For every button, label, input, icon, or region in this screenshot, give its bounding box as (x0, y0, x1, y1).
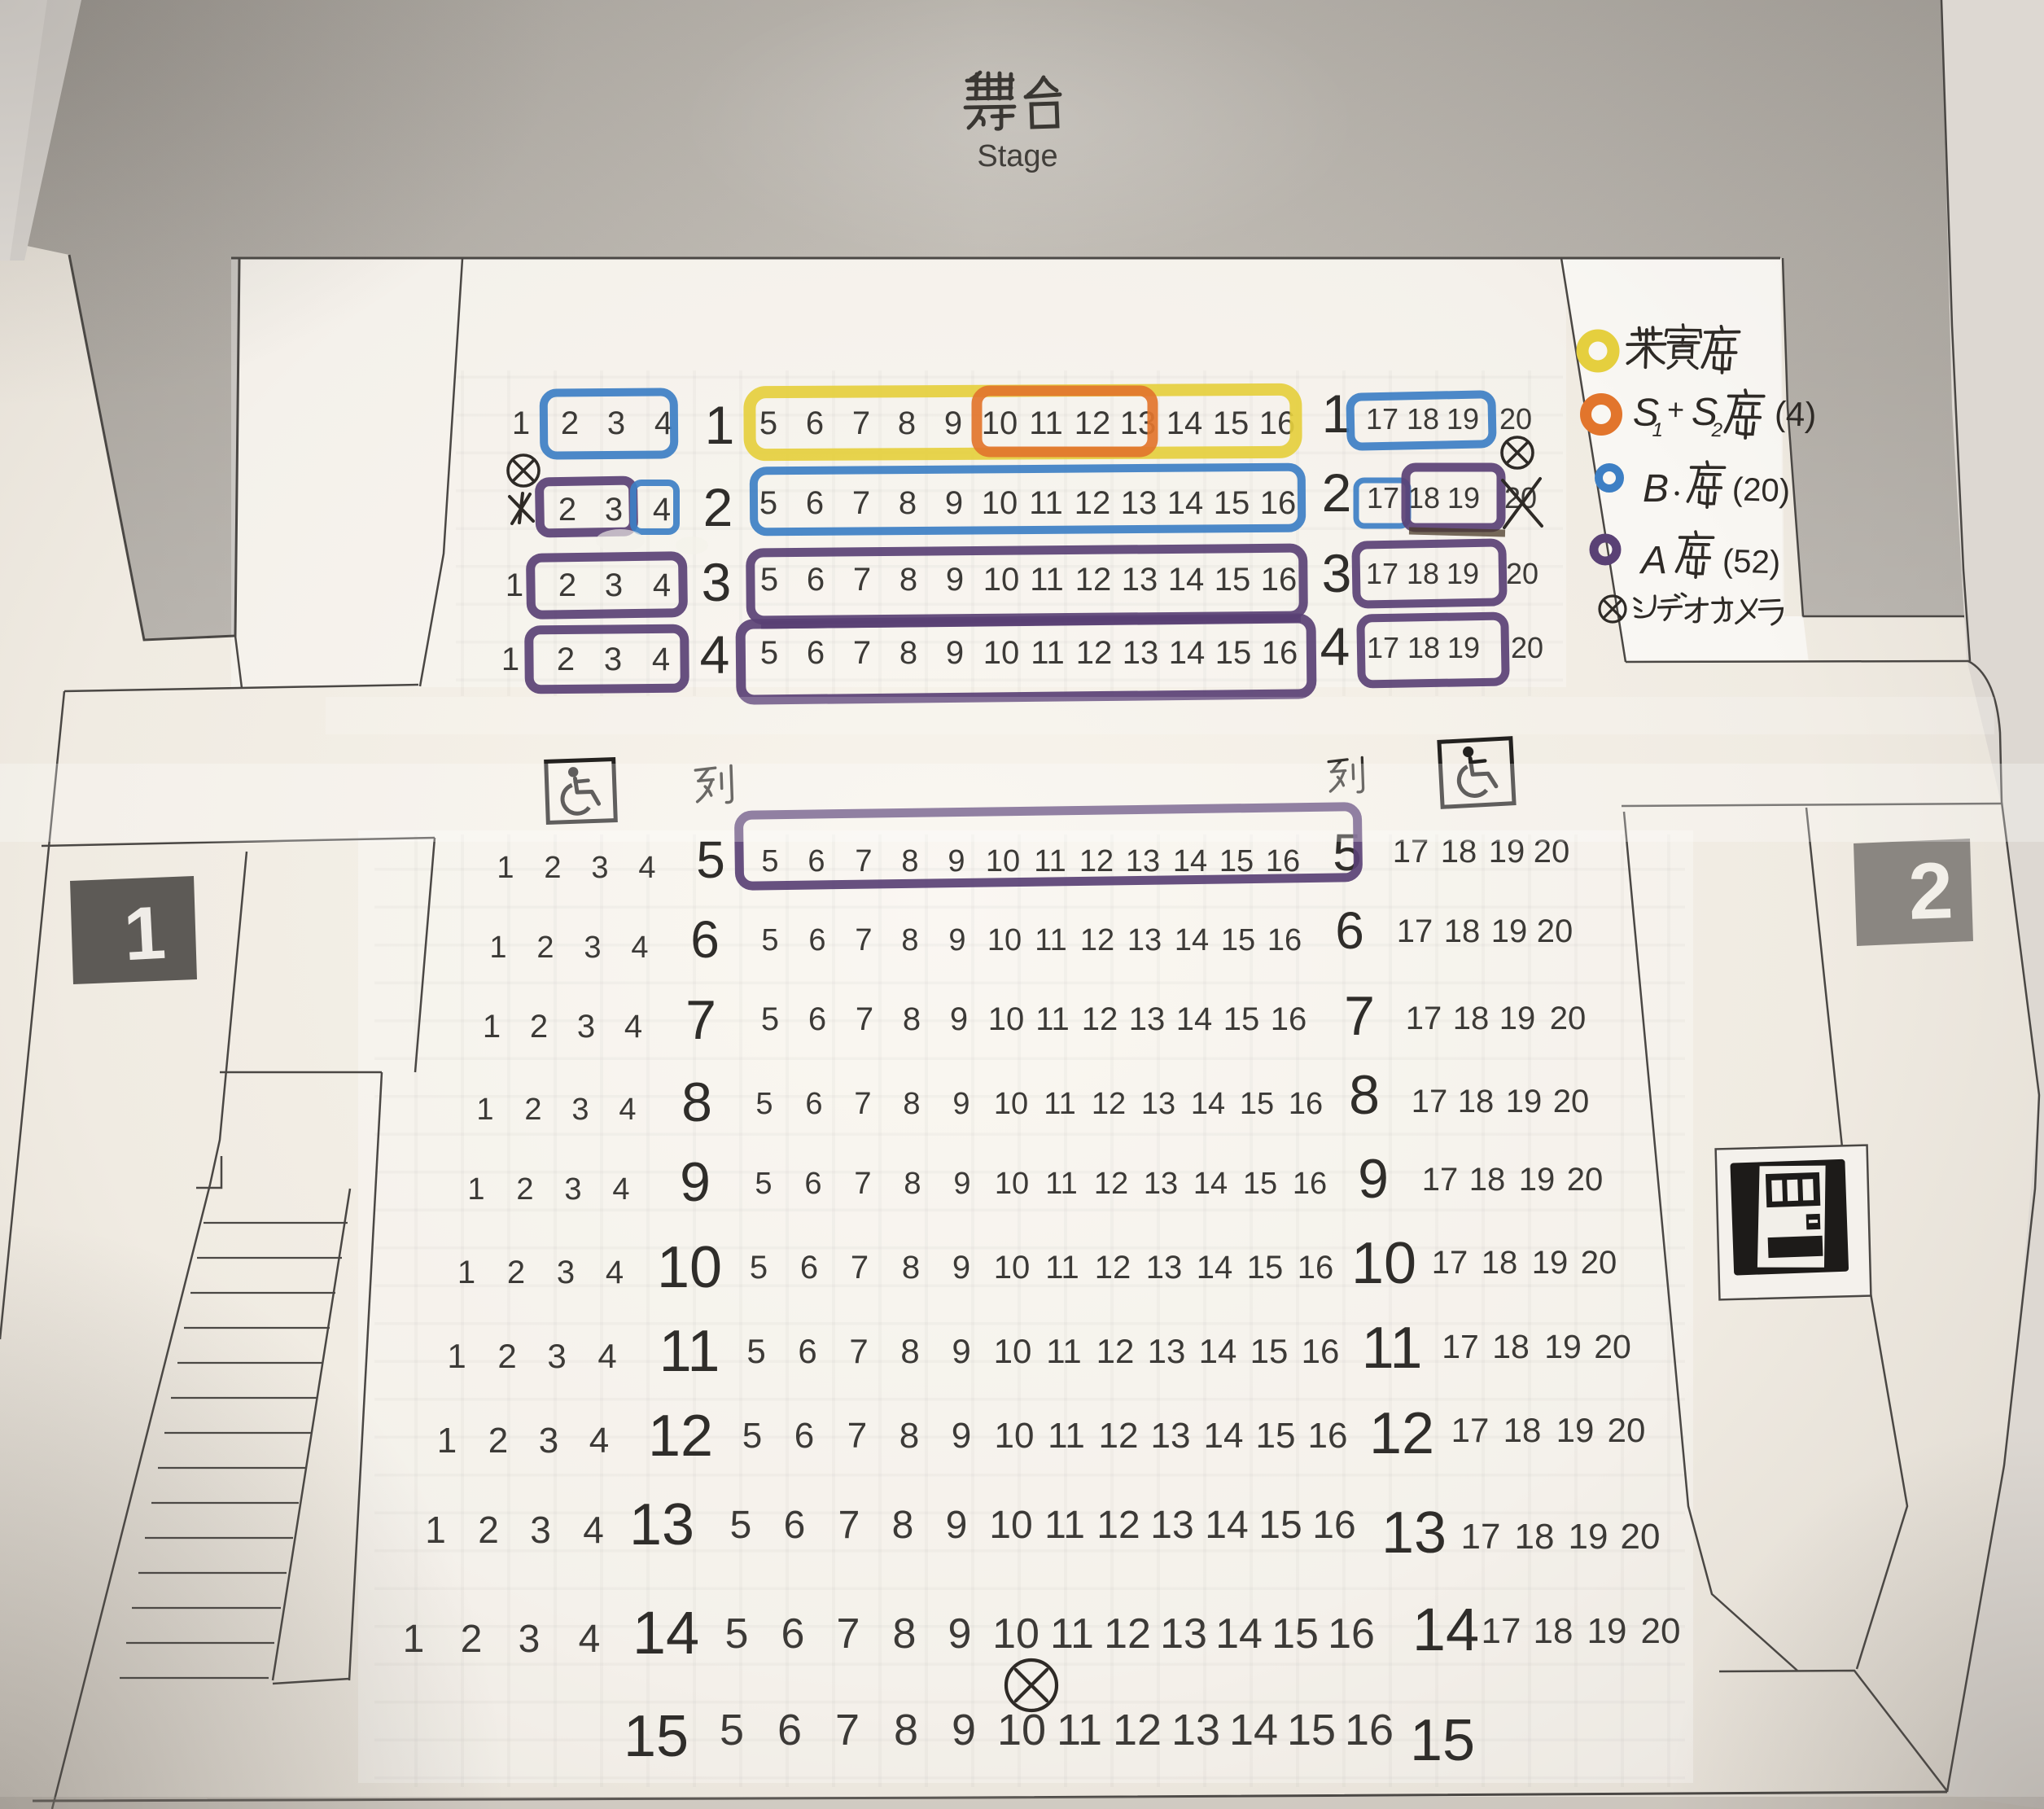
svg-text:7: 7 (1344, 985, 1375, 1047)
svg-text:19: 19 (1447, 402, 1479, 436)
svg-text:7: 7 (856, 1001, 873, 1037)
svg-text:11: 11 (1050, 1610, 1094, 1658)
svg-text:16: 16 (1261, 562, 1298, 598)
svg-text:11: 11 (1029, 485, 1063, 521)
svg-text:3: 3 (607, 405, 625, 441)
svg-text:13: 13 (1150, 1504, 1193, 1547)
svg-text:10: 10 (982, 405, 1018, 441)
svg-text:4: 4 (638, 851, 655, 885)
svg-text:3: 3 (557, 1255, 575, 1290)
svg-text:9: 9 (946, 635, 964, 671)
svg-text:B: B (1643, 467, 1669, 510)
svg-text:19: 19 (1491, 913, 1528, 949)
svg-text:11: 11 (1044, 1087, 1075, 1121)
svg-text:2: 2 (1907, 845, 1954, 936)
svg-text:7: 7 (852, 485, 870, 521)
svg-text:7: 7 (854, 1087, 871, 1121)
svg-text:10: 10 (657, 1235, 722, 1300)
svg-text:8: 8 (899, 485, 917, 521)
svg-text:20: 20 (1621, 1517, 1661, 1557)
svg-text:9: 9 (948, 844, 965, 878)
svg-text:2: 2 (524, 1093, 541, 1127)
svg-text:5: 5 (750, 1250, 768, 1286)
svg-text:11: 11 (1030, 562, 1064, 598)
svg-text:6: 6 (784, 1504, 806, 1547)
svg-text:11: 11 (1057, 1706, 1102, 1754)
svg-text:11: 11 (1046, 1332, 1082, 1370)
svg-text:10: 10 (983, 635, 1020, 671)
svg-text:12: 12 (1079, 844, 1114, 878)
svg-text:9: 9 (953, 1167, 970, 1201)
svg-text:17: 17 (1432, 1245, 1468, 1281)
svg-text:4: 4 (624, 1009, 642, 1045)
svg-text:7: 7 (685, 989, 716, 1051)
svg-text:9: 9 (946, 562, 964, 598)
svg-text:2: 2 (507, 1255, 525, 1290)
svg-text:5: 5 (742, 1416, 762, 1456)
svg-text:12: 12 (1080, 923, 1114, 957)
svg-text:8: 8 (893, 1610, 917, 1658)
svg-text:3: 3 (702, 552, 732, 612)
svg-text:5: 5 (761, 1001, 779, 1037)
svg-text:10: 10 (995, 1416, 1035, 1456)
svg-text:9: 9 (944, 405, 962, 441)
svg-text:11: 11 (1029, 405, 1063, 441)
svg-text:3: 3 (1322, 543, 1352, 603)
svg-text:19: 19 (1519, 1162, 1556, 1198)
svg-text:3: 3 (564, 1172, 581, 1207)
svg-text:16: 16 (1298, 1250, 1334, 1286)
svg-text:7: 7 (855, 844, 872, 878)
svg-text:15: 15 (1250, 1332, 1289, 1370)
svg-text:7: 7 (837, 1610, 860, 1658)
svg-text:12: 12 (1369, 1401, 1434, 1466)
svg-text:10: 10 (1351, 1231, 1416, 1296)
svg-text:20: 20 (1550, 1001, 1587, 1036)
svg-text:16: 16 (1266, 844, 1300, 878)
svg-text:13: 13 (1129, 1001, 1166, 1037)
svg-text:14: 14 (1175, 923, 1209, 957)
svg-text:12: 12 (1082, 1001, 1118, 1037)
svg-text:2: 2 (544, 851, 561, 885)
svg-text:15: 15 (1215, 635, 1252, 671)
svg-text:4: 4 (579, 1618, 601, 1661)
svg-text:3: 3 (584, 931, 601, 965)
svg-text:11: 11 (1034, 844, 1066, 878)
svg-text:3: 3 (591, 851, 608, 885)
svg-text:5: 5 (761, 923, 778, 957)
svg-text:14: 14 (1167, 485, 1204, 521)
svg-text:4: 4 (652, 642, 670, 677)
svg-text:5: 5 (760, 562, 778, 598)
svg-text:1: 1 (122, 891, 168, 977)
svg-text:9: 9 (952, 1087, 969, 1121)
svg-text:11: 11 (659, 1319, 720, 1384)
svg-text:9: 9 (952, 1332, 970, 1370)
svg-text:4: 4 (619, 1093, 636, 1127)
svg-text:13: 13 (1126, 844, 1160, 878)
svg-text:18: 18 (1458, 1084, 1495, 1119)
svg-text:4: 4 (583, 1509, 604, 1551)
svg-text:14: 14 (1173, 844, 1207, 878)
svg-text:9: 9 (680, 1151, 711, 1213)
svg-text:10: 10 (986, 844, 1020, 878)
svg-text:17: 17 (1422, 1162, 1459, 1198)
svg-text:10: 10 (992, 1610, 1040, 1658)
svg-text:18: 18 (1492, 1328, 1530, 1365)
svg-text:6: 6 (781, 1610, 805, 1658)
svg-text:12: 12 (1092, 1087, 1126, 1121)
svg-text:3: 3 (577, 1009, 595, 1045)
svg-text:5: 5 (759, 485, 777, 521)
svg-text:10: 10 (994, 1250, 1031, 1286)
svg-text:20: 20 (1537, 913, 1573, 949)
svg-text:14: 14 (1204, 1416, 1244, 1456)
svg-text:16: 16 (1293, 1167, 1327, 1201)
svg-text:15: 15 (1247, 1250, 1284, 1286)
svg-text:15: 15 (1271, 1610, 1319, 1658)
svg-text:14: 14 (1215, 1610, 1263, 1658)
svg-text:10: 10 (988, 1001, 1025, 1037)
svg-text:13: 13 (1151, 1416, 1191, 1456)
svg-text:6: 6 (794, 1416, 814, 1456)
svg-text:7: 7 (838, 1504, 860, 1547)
svg-text:2: 2 (516, 1172, 533, 1207)
svg-text:14: 14 (1193, 1167, 1228, 1201)
svg-text:15: 15 (1214, 485, 1250, 521)
svg-text:18: 18 (1407, 481, 1440, 515)
svg-text:4: 4 (653, 567, 671, 603)
svg-text:17: 17 (1451, 1411, 1490, 1449)
svg-text:15: 15 (1221, 923, 1255, 957)
svg-text:6: 6 (806, 485, 824, 521)
svg-text:4: 4 (700, 624, 730, 685)
svg-text:9: 9 (945, 485, 963, 521)
svg-text:15: 15 (1243, 1167, 1277, 1201)
svg-text:16: 16 (1262, 635, 1298, 671)
svg-text:13: 13 (1123, 635, 1159, 671)
svg-text:6: 6 (808, 1001, 826, 1037)
svg-text:8: 8 (902, 1250, 920, 1286)
svg-text:6: 6 (805, 1087, 822, 1121)
svg-text:+: + (1667, 392, 1685, 426)
svg-text:20: 20 (1553, 1084, 1590, 1119)
svg-text:3: 3 (519, 1618, 541, 1661)
svg-text:20: 20 (1511, 631, 1543, 664)
svg-text:15: 15 (1215, 562, 1251, 598)
svg-text:9: 9 (946, 1504, 968, 1547)
svg-text:3: 3 (604, 642, 622, 677)
svg-text:13: 13 (1122, 562, 1158, 598)
svg-text:12: 12 (648, 1404, 713, 1469)
svg-text:12: 12 (1076, 635, 1113, 671)
svg-text:18: 18 (1407, 631, 1440, 664)
svg-text:16: 16 (1328, 1610, 1375, 1658)
svg-text:20: 20 (1594, 1328, 1631, 1365)
svg-text:7: 7 (852, 405, 870, 441)
svg-text:4: 4 (612, 1172, 629, 1207)
svg-text:16: 16 (1267, 923, 1302, 957)
svg-text:2: 2 (557, 642, 575, 677)
svg-text:18: 18 (1444, 913, 1481, 949)
svg-text:3: 3 (530, 1509, 551, 1551)
svg-text:8: 8 (900, 1332, 919, 1370)
svg-text:9: 9 (952, 1250, 970, 1286)
svg-text:15: 15 (1256, 1416, 1296, 1456)
svg-text:11: 11 (1044, 1504, 1085, 1547)
svg-text:12: 12 (1075, 562, 1112, 598)
svg-text:13: 13 (1121, 485, 1158, 521)
svg-text:14: 14 (1205, 1504, 1248, 1547)
svg-text:10: 10 (995, 1167, 1029, 1201)
svg-text:6: 6 (1335, 901, 1364, 960)
svg-text:13: 13 (1381, 1500, 1447, 1566)
svg-text:18: 18 (1515, 1517, 1555, 1557)
svg-text:14: 14 (1176, 1001, 1213, 1037)
svg-text:4: 4 (653, 492, 671, 528)
svg-text:10: 10 (987, 923, 1022, 957)
svg-text:5: 5 (720, 1706, 744, 1754)
svg-text:8: 8 (901, 844, 918, 878)
svg-text:Stage: Stage (977, 139, 1057, 173)
svg-text:12: 12 (1104, 1610, 1151, 1658)
svg-text:8: 8 (899, 562, 917, 598)
svg-text:1: 1 (1652, 419, 1663, 441)
svg-text:(52): (52) (1722, 543, 1781, 580)
svg-text:8: 8 (681, 1071, 712, 1133)
svg-text:4: 4 (589, 1421, 609, 1461)
svg-text:13: 13 (1160, 1610, 1207, 1658)
svg-text:19: 19 (1556, 1411, 1595, 1449)
svg-text:10: 10 (989, 1504, 1032, 1547)
svg-text:13: 13 (629, 1492, 694, 1557)
svg-text:13: 13 (1144, 1167, 1178, 1201)
svg-text:4: 4 (606, 1255, 624, 1290)
svg-text:20: 20 (1567, 1162, 1604, 1198)
svg-text:19: 19 (1569, 1517, 1609, 1557)
svg-text:1: 1 (483, 1009, 501, 1045)
svg-text:6: 6 (800, 1250, 818, 1286)
svg-text:7: 7 (851, 1250, 869, 1286)
svg-text:6: 6 (808, 923, 825, 957)
svg-text:15: 15 (1410, 1708, 1475, 1773)
svg-text:9: 9 (952, 1706, 976, 1754)
svg-text:12: 12 (1075, 485, 1111, 521)
svg-text:8: 8 (899, 1416, 919, 1456)
svg-text:12: 12 (1075, 405, 1111, 441)
svg-text:18: 18 (1503, 1411, 1542, 1449)
svg-text:7: 7 (853, 635, 871, 671)
svg-text:6: 6 (806, 405, 824, 441)
svg-text:7: 7 (855, 923, 872, 957)
svg-text:2: 2 (530, 1009, 548, 1045)
svg-text:1: 1 (705, 395, 735, 455)
svg-text:12: 12 (1113, 1706, 1162, 1754)
svg-text:17: 17 (1442, 1328, 1479, 1365)
svg-text:1: 1 (506, 567, 523, 603)
svg-text:15: 15 (1240, 1087, 1274, 1121)
svg-text:11: 11 (1035, 923, 1066, 957)
svg-text:3: 3 (605, 567, 623, 603)
svg-text:15: 15 (1287, 1706, 1336, 1754)
svg-text:11: 11 (1048, 1416, 1085, 1456)
svg-text:1: 1 (489, 931, 506, 965)
svg-text:19: 19 (1447, 557, 1479, 590)
svg-text:16: 16 (1312, 1504, 1355, 1547)
svg-text:9: 9 (948, 1610, 972, 1658)
svg-text:14: 14 (1168, 562, 1205, 598)
svg-text:17: 17 (1412, 1084, 1448, 1119)
svg-text:17: 17 (1482, 1611, 1521, 1651)
svg-text:13: 13 (1141, 1087, 1175, 1121)
svg-text:15: 15 (624, 1704, 689, 1769)
svg-text:11: 11 (1362, 1316, 1423, 1381)
svg-text:18: 18 (1469, 1162, 1506, 1198)
svg-text:8: 8 (903, 1087, 920, 1121)
svg-text:1: 1 (512, 405, 530, 441)
svg-text:10: 10 (994, 1332, 1032, 1370)
svg-text:10: 10 (982, 485, 1018, 521)
svg-text:17: 17 (1367, 481, 1399, 515)
svg-text:6: 6 (690, 910, 720, 969)
svg-text:19: 19 (1532, 1245, 1569, 1281)
svg-text:5: 5 (746, 1332, 765, 1370)
svg-text:15: 15 (1223, 1001, 1260, 1037)
svg-text:13: 13 (1146, 1250, 1183, 1286)
svg-text:(4): (4) (1774, 394, 1817, 434)
svg-text:11: 11 (1045, 1250, 1079, 1286)
svg-text:18: 18 (1482, 1245, 1518, 1281)
svg-text:14: 14 (1412, 1596, 1479, 1663)
svg-text:12: 12 (1094, 1167, 1128, 1201)
svg-text:9: 9 (948, 923, 965, 957)
svg-text:11: 11 (1045, 1167, 1077, 1201)
svg-text:13: 13 (1148, 1332, 1186, 1370)
svg-text:8: 8 (904, 1167, 921, 1201)
svg-text:20: 20 (1499, 402, 1532, 436)
svg-text:2: 2 (1322, 462, 1352, 523)
svg-text:14: 14 (1191, 1087, 1225, 1121)
svg-text:17: 17 (1366, 557, 1398, 590)
svg-text:12: 12 (1095, 1250, 1131, 1286)
svg-text:14: 14 (1199, 1332, 1237, 1370)
svg-text:9: 9 (952, 1416, 971, 1456)
svg-text:7: 7 (835, 1706, 860, 1754)
svg-text:20: 20 (1581, 1245, 1617, 1281)
svg-text:4: 4 (1320, 616, 1350, 677)
svg-text:3: 3 (547, 1337, 566, 1375)
svg-text:18: 18 (1407, 402, 1439, 436)
svg-text:12: 12 (1096, 1332, 1135, 1370)
svg-text:14: 14 (1166, 405, 1203, 441)
svg-text:2: 2 (703, 477, 733, 537)
svg-text:15: 15 (1213, 405, 1250, 441)
svg-text:17: 17 (1461, 1517, 1501, 1557)
svg-text:5: 5 (761, 844, 778, 878)
svg-text:8: 8 (898, 405, 916, 441)
svg-text:16: 16 (1308, 1416, 1348, 1456)
svg-text:7: 7 (849, 1332, 868, 1370)
svg-text:13: 13 (1127, 923, 1162, 957)
svg-text:16: 16 (1260, 485, 1297, 521)
svg-text:19: 19 (1544, 1328, 1582, 1365)
svg-text:9: 9 (950, 1001, 968, 1037)
svg-text:20: 20 (1608, 1411, 1646, 1449)
svg-text:19: 19 (1447, 481, 1480, 515)
svg-text:16: 16 (1345, 1706, 1394, 1754)
svg-text:13: 13 (1171, 1706, 1220, 1754)
svg-text:6: 6 (777, 1706, 802, 1754)
svg-text:17: 17 (1367, 631, 1399, 664)
svg-text:16: 16 (1302, 1332, 1340, 1370)
svg-text:16: 16 (1289, 1087, 1323, 1121)
svg-text:17: 17 (1406, 1001, 1442, 1036)
svg-text:8: 8 (892, 1504, 914, 1547)
svg-text:1: 1 (476, 1093, 493, 1127)
svg-text:10: 10 (994, 1087, 1028, 1121)
svg-text:5: 5 (759, 405, 777, 441)
svg-text:16: 16 (1271, 1001, 1307, 1037)
svg-text:18: 18 (1407, 557, 1439, 590)
svg-text:1: 1 (501, 642, 519, 677)
svg-text:11: 11 (1035, 1001, 1070, 1037)
svg-text:10: 10 (997, 1706, 1046, 1754)
svg-text:3: 3 (539, 1421, 558, 1461)
svg-text:15: 15 (1219, 844, 1254, 878)
svg-text:14: 14 (1169, 635, 1206, 671)
svg-text:8: 8 (894, 1706, 918, 1754)
svg-text:2: 2 (561, 405, 579, 441)
svg-text:14: 14 (1197, 1250, 1233, 1286)
svg-text:8: 8 (899, 635, 917, 671)
svg-text:8: 8 (1349, 1064, 1380, 1126)
svg-text:19: 19 (1499, 1001, 1536, 1036)
svg-text:7: 7 (847, 1416, 867, 1456)
svg-text:14: 14 (632, 1599, 699, 1667)
svg-text:2: 2 (558, 492, 576, 528)
svg-text:12: 12 (1096, 1504, 1140, 1547)
svg-text:12: 12 (1099, 1416, 1139, 1456)
svg-text:9: 9 (1358, 1148, 1389, 1210)
svg-text:1: 1 (497, 851, 514, 885)
svg-text:20: 20 (1506, 557, 1538, 590)
svg-text:14: 14 (1229, 1706, 1278, 1754)
svg-text:8: 8 (901, 923, 918, 957)
svg-text:19: 19 (1506, 1084, 1543, 1119)
svg-text:1: 1 (467, 1172, 484, 1207)
svg-text:6: 6 (798, 1332, 816, 1370)
svg-text:17: 17 (1366, 402, 1398, 436)
svg-text:5: 5 (755, 1167, 772, 1201)
svg-text:5: 5 (730, 1504, 752, 1547)
svg-text:19: 19 (1587, 1611, 1627, 1651)
svg-text:6: 6 (807, 635, 825, 671)
svg-text:19: 19 (1447, 631, 1480, 664)
svg-text:8: 8 (903, 1001, 921, 1037)
svg-text:2: 2 (536, 931, 554, 965)
svg-text:11: 11 (1031, 635, 1065, 671)
svg-text:4: 4 (597, 1337, 616, 1375)
svg-text:18: 18 (1453, 1001, 1490, 1036)
svg-text:2: 2 (1710, 419, 1722, 441)
svg-text:(20): (20) (1731, 471, 1791, 509)
svg-text:10: 10 (983, 562, 1020, 598)
svg-text:6: 6 (807, 562, 825, 598)
svg-text:5: 5 (760, 635, 778, 671)
svg-text:4: 4 (631, 931, 648, 965)
svg-text:3: 3 (605, 492, 623, 528)
svg-text:5: 5 (755, 1087, 773, 1121)
